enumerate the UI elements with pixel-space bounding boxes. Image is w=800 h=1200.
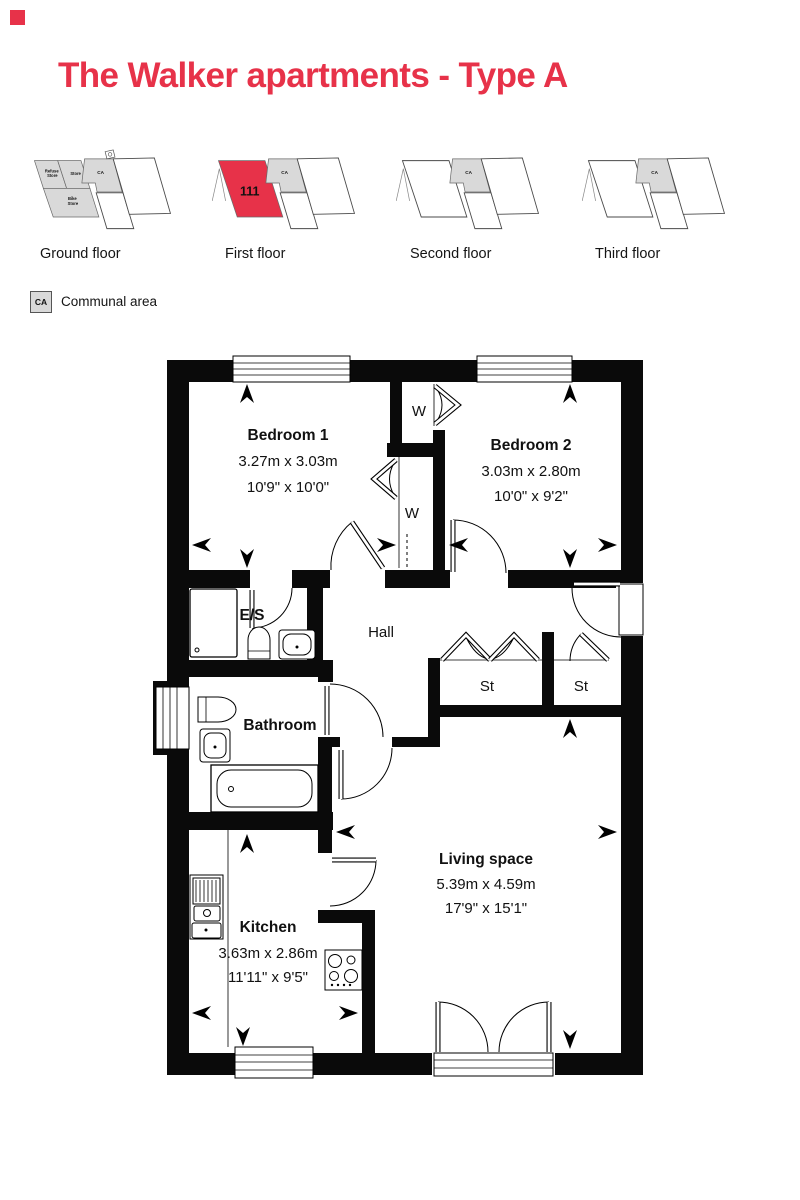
roof-vent: [105, 150, 115, 159]
legend-ca-label: Communal area: [61, 294, 157, 309]
bedroom1-metric: 3.27m x 3.03m: [238, 453, 337, 470]
bathroom-label: Bathroom: [243, 717, 316, 734]
kitchen-door: [330, 860, 376, 906]
bedroom2-metric: 3.03m x 2.80m: [481, 463, 580, 480]
living-name: Living space: [439, 851, 533, 868]
unit-number: 111: [240, 185, 260, 199]
wardrobe-bottom-label: W: [405, 505, 420, 522]
bedroom2-imperial: 10'0" x 9'2": [494, 488, 568, 505]
bedroom2-name: Bedroom 2: [491, 437, 572, 454]
hall-label: Hall: [368, 624, 394, 641]
ground-floor-diagram: Refuse Store Store Bike Store CA: [28, 149, 176, 234]
first-floor-label: First floor: [225, 246, 285, 262]
store-right-label: St: [574, 678, 589, 695]
bathroom-basin: [200, 729, 230, 762]
kitchen-name: Kitchen: [240, 919, 297, 936]
store-left-label: St: [480, 678, 495, 695]
kitchen-imperial: 11'11" x 9'5": [228, 969, 308, 986]
second-floor-label: Second floor: [410, 246, 491, 262]
store-left-doors: [440, 635, 542, 660]
page-title: The Walker apartments - Type A: [58, 56, 568, 96]
ca-label: CA: [97, 170, 104, 175]
hob: [325, 950, 362, 990]
ca-label: CA: [465, 170, 472, 175]
bedroom1-imperial: 10'9" x 10'0": [247, 479, 329, 496]
living-imperial: 17'9" x 15'1": [445, 900, 527, 917]
store-right-door: [554, 634, 609, 661]
third-floor-diagram: CA: [582, 149, 730, 234]
ensuite-basin: [279, 630, 315, 659]
ensuite-toilet: [248, 627, 270, 659]
wardrobe-top-label: W: [412, 403, 427, 420]
ground-floor-label: Ground floor: [40, 246, 121, 262]
floor-plan: Bedroom 1 3.27m x 3.03m 10'9" x 10'0" Be…: [150, 350, 660, 1085]
legend-ca-key: CA: [30, 291, 52, 313]
living-metric: 5.39m x 4.59m: [436, 876, 535, 893]
wardrobe-top-door: [434, 384, 458, 426]
ca-label: CA: [281, 170, 288, 175]
refuse-store-label: Refuse Store: [45, 168, 60, 178]
ensuite-label: E/S: [240, 607, 265, 624]
bathroom-door: [327, 684, 383, 737]
bike-store-label: Bike Store: [68, 196, 79, 206]
ca-label: CA: [651, 170, 658, 175]
bathroom-toilet: [198, 697, 236, 722]
store-label: Store: [70, 171, 81, 176]
first-floor-diagram: 111 CA: [212, 149, 360, 234]
bedroom1-door: [331, 522, 383, 570]
kitchen-metric: 3.63m x 2.86m: [218, 945, 317, 962]
bedroom1-name: Bedroom 1: [248, 427, 329, 444]
second-floor-diagram: CA: [396, 149, 544, 234]
kitchen-sink: [190, 875, 223, 939]
third-floor-label: Third floor: [595, 246, 660, 262]
brand-mark: [10, 10, 25, 25]
living-door: [341, 748, 392, 799]
bathtub: [211, 765, 318, 812]
shower: [190, 589, 237, 657]
